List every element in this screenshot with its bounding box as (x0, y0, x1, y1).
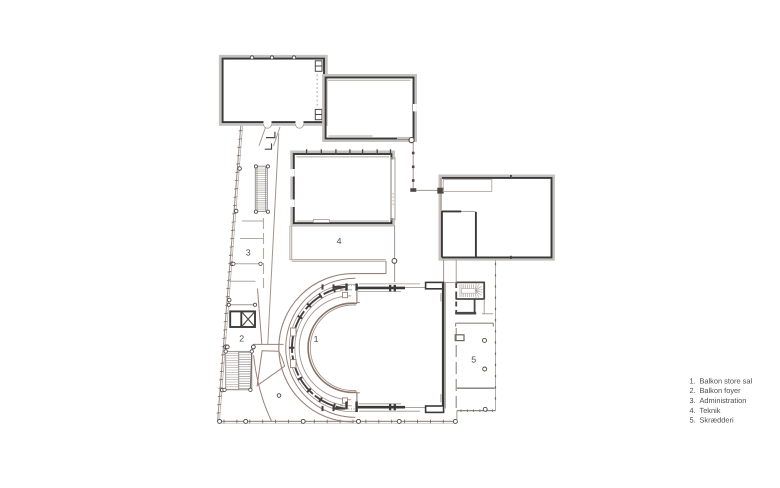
svg-text:4: 4 (337, 236, 342, 246)
svg-text:Balkon store sal: Balkon store sal (700, 376, 753, 385)
svg-text:5.: 5. (690, 416, 696, 425)
svg-text:1.: 1. (690, 376, 696, 385)
svg-text:1: 1 (314, 334, 319, 344)
svg-text:Teknik: Teknik (700, 406, 721, 415)
svg-text:Balkon foyer: Balkon foyer (700, 386, 742, 395)
svg-text:3: 3 (246, 247, 251, 257)
svg-text:Administration: Administration (700, 396, 747, 405)
svg-text:3.: 3. (690, 396, 696, 405)
svg-text:5: 5 (471, 354, 476, 364)
svg-text:Skrædderi: Skrædderi (700, 416, 734, 425)
svg-text:2: 2 (239, 334, 244, 344)
svg-text:4.: 4. (690, 406, 696, 415)
svg-text:2.: 2. (690, 386, 696, 395)
